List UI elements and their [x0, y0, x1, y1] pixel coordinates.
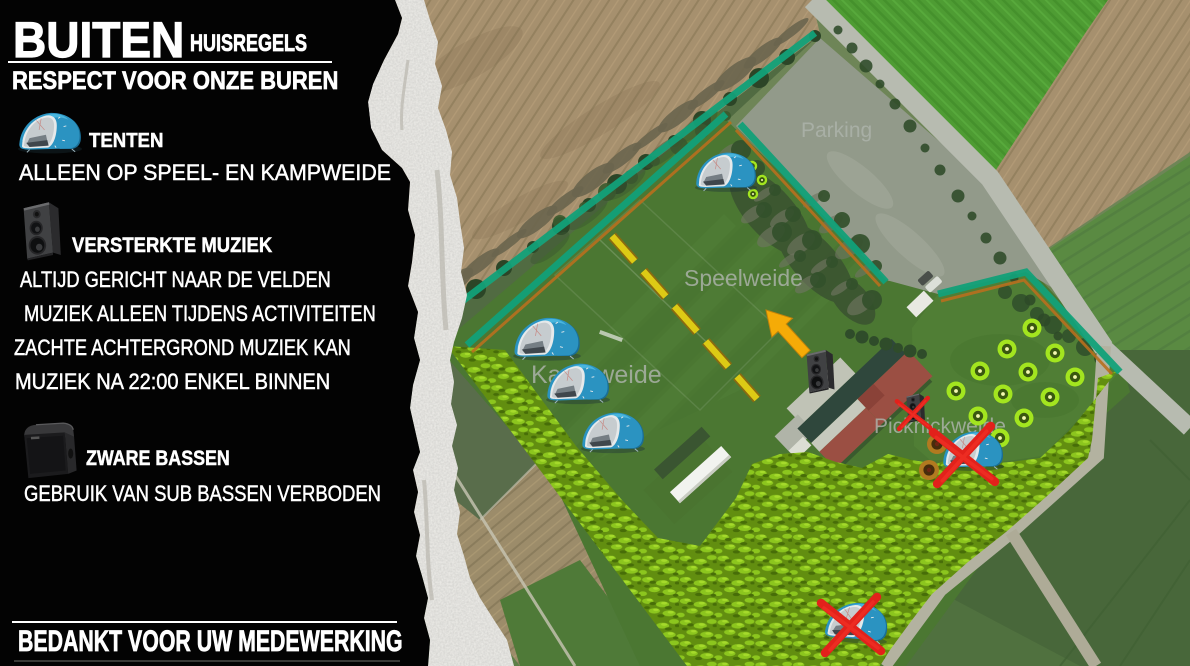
- svg-text:Speelweide: Speelweide: [684, 265, 803, 291]
- svg-text:Parking: Parking: [801, 119, 872, 142]
